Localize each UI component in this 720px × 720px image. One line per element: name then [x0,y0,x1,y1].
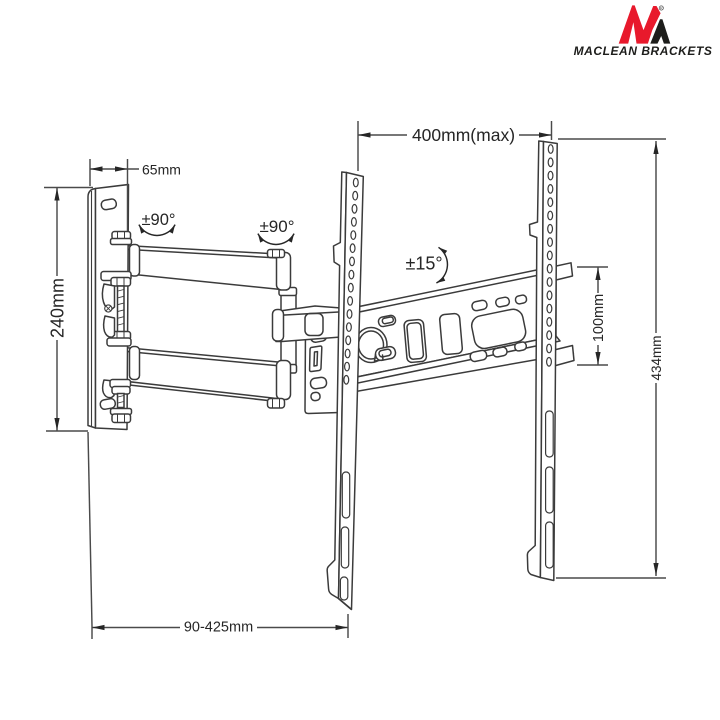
svg-text:±15°: ±15° [405,254,442,274]
svg-text:100mm: 100mm [591,294,607,342]
svg-text:R: R [660,6,663,11]
svg-text:240mm: 240mm [48,278,68,338]
svg-text:±90°: ±90° [259,217,294,236]
svg-text:434mm: 434mm [649,335,664,380]
svg-text:400mm(max): 400mm(max) [412,125,515,145]
svg-text:±90°: ±90° [141,211,175,229]
svg-text:90-425mm: 90-425mm [184,620,253,636]
svg-text:MACLEAN BRACKETS: MACLEAN BRACKETS [574,44,713,58]
svg-text:65mm: 65mm [142,162,181,178]
